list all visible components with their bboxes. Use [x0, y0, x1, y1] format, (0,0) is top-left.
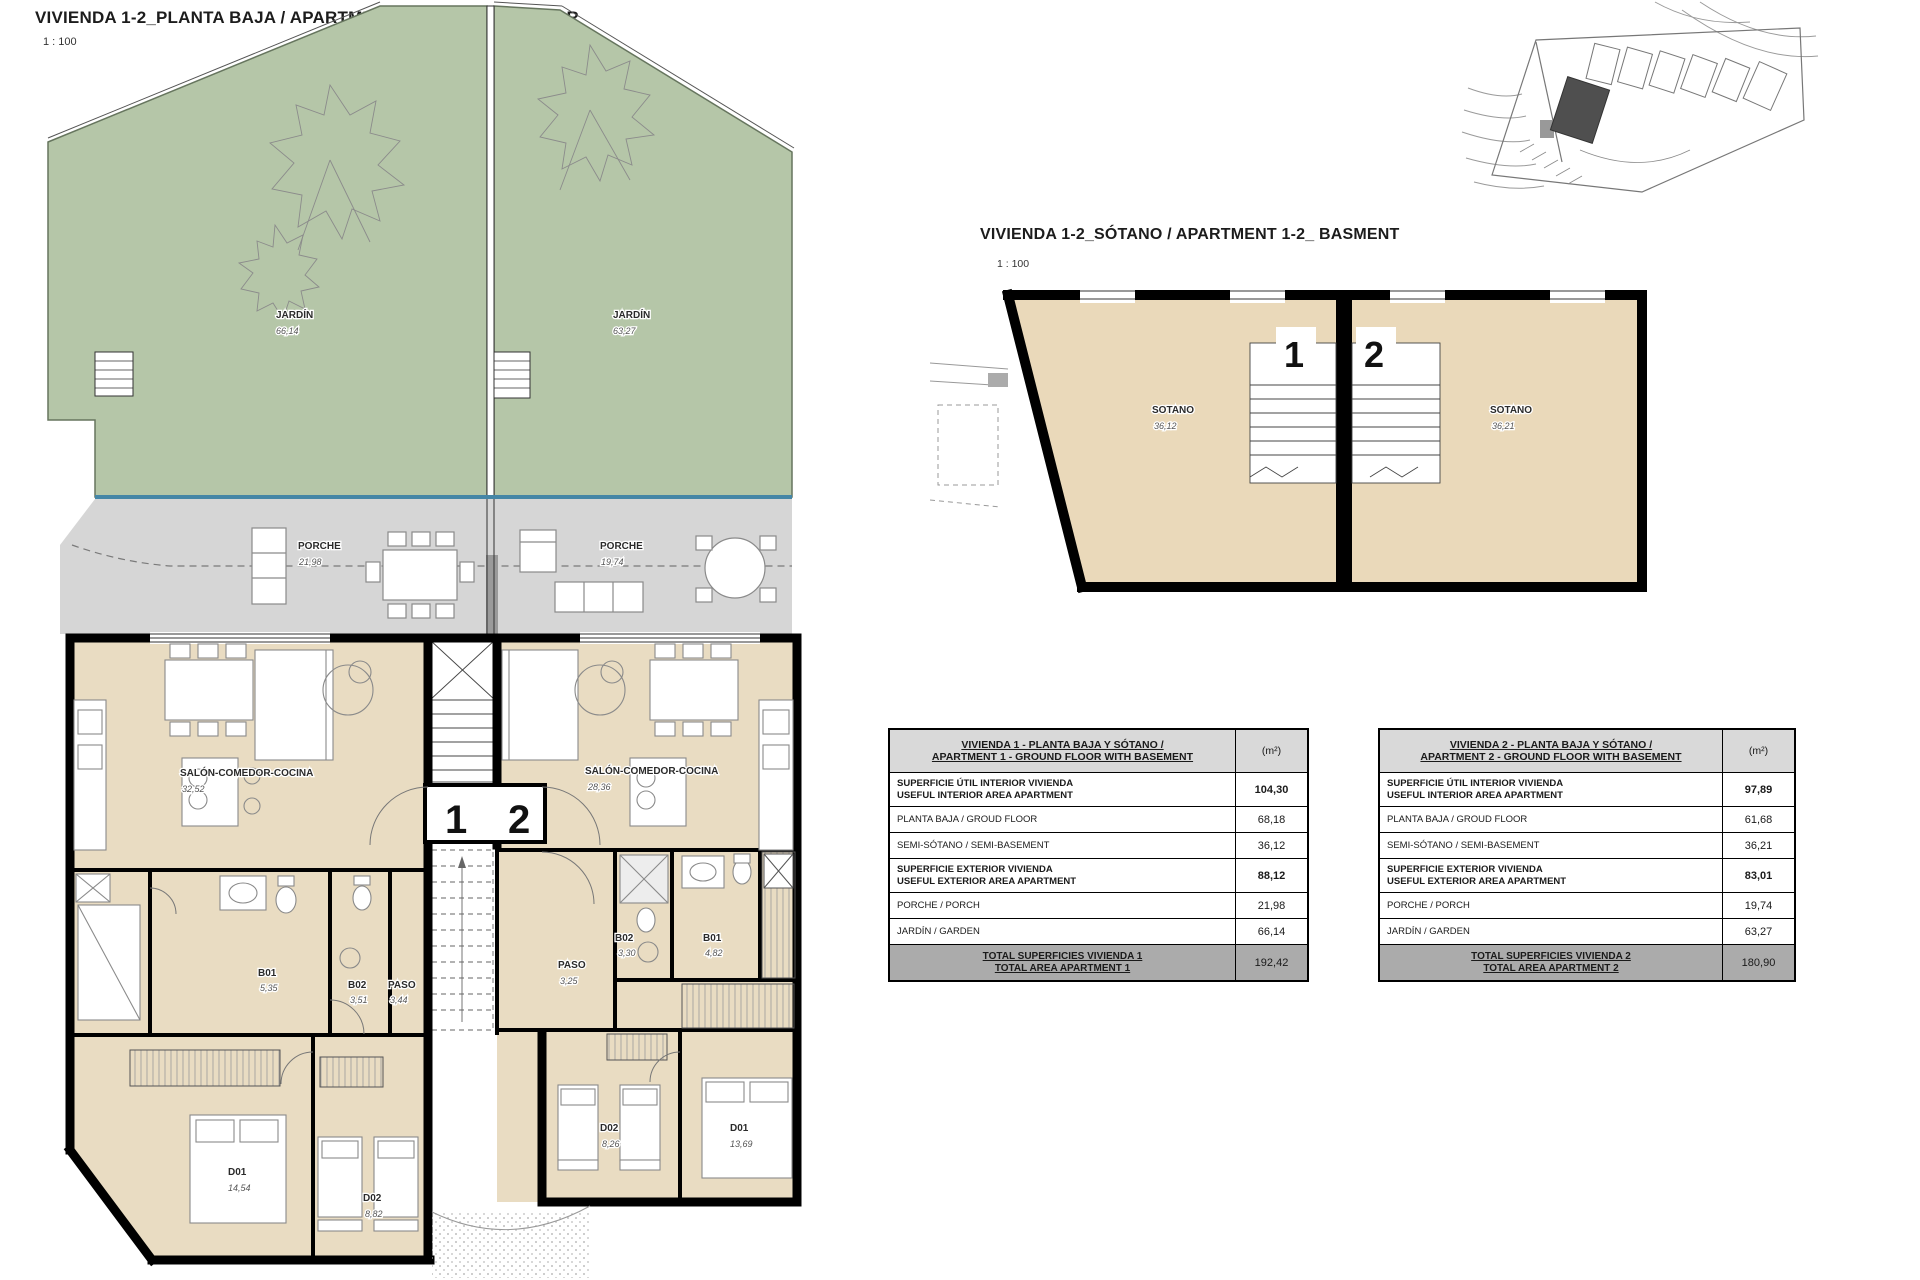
area-table-apartment-2: VIVIENDA 2 - PLANTA BAJA Y SÓTANO / APAR…	[1378, 728, 1796, 982]
unit-1-label: 1	[445, 798, 467, 842]
d02-2-area: 8,26	[602, 1139, 620, 1149]
table2-total-row: TOTAL SUPERFICIES VIVIENDA 2 TOTAL AREA …	[1380, 944, 1794, 980]
unit-2-label: 2	[508, 798, 530, 842]
table2-header: VIVIENDA 2 - PLANTA BAJA Y SÓTANO / APAR…	[1380, 730, 1794, 772]
b01-2-area: 4,82	[705, 948, 723, 958]
porch2-area: 19,74	[601, 557, 624, 567]
table1-header: VIVIENDA 1 - PLANTA BAJA Y SÓTANO / APAR…	[890, 730, 1307, 772]
table2-title: VIVIENDA 2 - PLANTA BAJA Y SÓTANO / APAR…	[1380, 730, 1722, 772]
d01-2-name: D01	[730, 1123, 749, 1134]
salon1-name: SALÓN-COMEDOR-COCINA	[180, 766, 313, 779]
site-highlighted-unit	[1550, 77, 1609, 144]
d02-2-name: D02	[600, 1123, 619, 1134]
table-row: SUPERFICIE EXTERIOR VIVIENDAUSEFUL EXTER…	[890, 858, 1307, 892]
basement-unit-2: 2	[1364, 334, 1384, 375]
basement-plan: 1 2 SOTANO 36,12 SOTANO 36,21	[930, 255, 1690, 615]
b01-1-name: B01	[258, 968, 277, 979]
table-row: JARDÍN / GARDEN 63,27	[1380, 918, 1794, 944]
table-row: SEMI-SÓTANO / SEMI-BASEMENT 36,12	[890, 832, 1307, 858]
d01-1-name: D01	[228, 1167, 247, 1178]
paso1-name: PASO	[388, 980, 416, 991]
garden-right	[494, 2, 794, 497]
table1-unit-header: (m²)	[1235, 730, 1307, 772]
b01-2-name: B01	[703, 933, 722, 944]
garden-left	[48, 2, 487, 497]
basement-outside-lines	[930, 363, 1008, 507]
table-row: SEMI-SÓTANO / SEMI-BASEMENT 36,21	[1380, 832, 1794, 858]
table-row: SUPERFICIE ÚTIL INTERIOR VIVIENDAUSEFUL …	[1380, 772, 1794, 806]
b02-1-area: 3,51	[350, 995, 368, 1005]
table-row: JARDÍN / GARDEN 66,14	[890, 918, 1307, 944]
d02-1-name: D02	[363, 1193, 382, 1204]
table-row: PORCHE / PORCH 19,74	[1380, 892, 1794, 918]
ground-floor-plan: 1 2	[30, 0, 820, 1280]
d01-1-area: 14,54	[228, 1183, 251, 1193]
paso2-name: PASO	[558, 960, 586, 971]
table-row: SUPERFICIE EXTERIOR VIVIENDAUSEFUL EXTER…	[1380, 858, 1794, 892]
table2-unit-header: (m²)	[1722, 730, 1794, 772]
site-plan-sketch	[1460, 0, 1820, 200]
blue-edge-line	[95, 495, 792, 499]
sotano1-area: 36,12	[1154, 421, 1177, 431]
basement-title: VIVIENDA 1-2_SÓTANO / APARTMENT 1-2_ BAS…	[980, 226, 1400, 244]
d02-1-area: 8,82	[365, 1209, 383, 1219]
paso2-area: 3,25	[560, 976, 579, 986]
garden2-name: JARDÍN	[613, 308, 650, 321]
d01-2-area: 13,69	[730, 1139, 753, 1149]
gravel-path	[432, 1206, 590, 1278]
paso1-area: 3,44	[390, 995, 408, 1005]
basement-party-wall	[1336, 295, 1352, 587]
garden2-area: 63,27	[613, 326, 637, 336]
b01-1-area: 5,35	[260, 983, 279, 993]
basement-unit-1: 1	[1284, 334, 1304, 375]
sotano2-name: SOTANO	[1490, 405, 1532, 416]
porch2-name: PORCHE	[600, 541, 643, 552]
stair-core	[430, 640, 495, 782]
salon2-name: SALÓN-COMEDOR-COCINA	[585, 764, 718, 777]
porch1-name: PORCHE	[298, 541, 341, 552]
b02-2-name: B02	[615, 933, 634, 944]
sotano1-name: SOTANO	[1152, 405, 1194, 416]
area-table-apartment-1: VIVIENDA 1 - PLANTA BAJA Y SÓTANO / APAR…	[888, 728, 1309, 982]
table-row: PLANTA BAJA / GROUD FLOOR 68,18	[890, 806, 1307, 832]
table-row: SUPERFICIE ÚTIL INTERIOR VIVIENDAUSEFUL …	[890, 772, 1307, 806]
floorplan-sheet: VIVIENDA 1-2_PLANTA BAJA / APARTMENT 1-2…	[0, 0, 1920, 1280]
sotano2-area: 36,21	[1492, 421, 1515, 431]
salon2-area: 28,36	[587, 782, 611, 792]
table1-title: VIVIENDA 1 - PLANTA BAJA Y SÓTANO / APAR…	[890, 730, 1235, 772]
b02-2-area: 3,30	[618, 948, 636, 958]
site-units	[1586, 43, 1787, 110]
salon1-area: 32,52	[182, 784, 205, 794]
garden1-area: 66,14	[276, 326, 299, 336]
table-row: PLANTA BAJA / GROUD FLOOR 61,68	[1380, 806, 1794, 832]
table1-total-row: TOTAL SUPERFICIES VIVIENDA 1 TOTAL AREA …	[890, 944, 1307, 980]
porch1-area: 21,98	[298, 557, 322, 567]
site-hatching	[1520, 144, 1690, 184]
b02-1-name: B02	[348, 980, 367, 991]
table-row: PORCHE / PORCH 21,98	[890, 892, 1307, 918]
garden1-name: JARDÍN	[276, 308, 313, 321]
